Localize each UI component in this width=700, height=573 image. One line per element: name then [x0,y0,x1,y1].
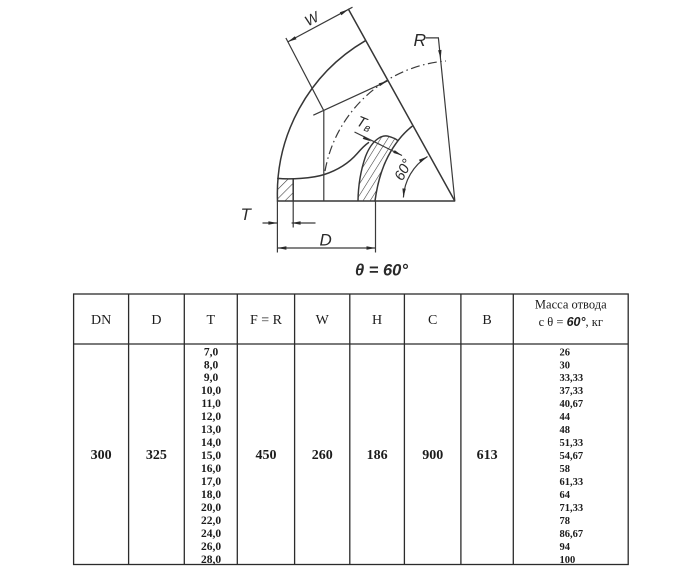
svg-text:D: D [320,231,332,250]
svg-text:86,67: 86,67 [560,529,584,540]
svg-text:20,0: 20,0 [201,502,221,514]
svg-text:θ = 60°: θ = 60° [355,262,408,280]
svg-text:14,0: 14,0 [201,437,221,449]
svg-text:24,0: 24,0 [201,528,221,540]
svg-text:W: W [316,313,330,328]
svg-text:R: R [414,30,427,50]
svg-text:DN: DN [91,313,111,328]
svg-text:450: 450 [256,448,277,463]
svg-text:54,67: 54,67 [560,451,584,462]
svg-text:11,0: 11,0 [201,398,221,410]
svg-text:33,33: 33,33 [560,373,584,384]
svg-text:300: 300 [91,448,112,463]
svg-text:16,0: 16,0 [201,463,221,475]
svg-text:13,0: 13,0 [201,424,221,436]
svg-text:12,0: 12,0 [201,411,221,423]
svg-text:28,0: 28,0 [201,554,221,566]
svg-text:100: 100 [560,555,576,566]
svg-text:64: 64 [560,490,571,501]
svg-text:9,0: 9,0 [204,372,219,384]
svg-text:71,33: 71,33 [560,503,584,514]
svg-text:D: D [151,313,161,328]
svg-text:8,0: 8,0 [204,359,219,371]
svg-text:60°: 60° [392,157,417,184]
svg-text:30: 30 [560,360,571,371]
svg-text:61,33: 61,33 [560,477,584,488]
svg-text:W: W [302,9,323,30]
svg-text:H: H [372,313,382,328]
svg-text:325: 325 [146,448,167,463]
svg-text:22,0: 22,0 [201,515,221,527]
svg-text:37,33: 37,33 [560,386,584,397]
svg-text:17,0: 17,0 [201,476,221,488]
svg-text:58: 58 [560,464,571,475]
svg-text:C: C [428,313,437,328]
svg-text:T: T [207,313,216,328]
svg-text:26,0: 26,0 [201,541,221,553]
svg-text:26: 26 [560,347,571,358]
svg-text:Tв: Tв [354,113,375,135]
svg-text:260: 260 [312,448,333,463]
svg-text:F = R: F = R [250,313,283,328]
svg-text:B: B [482,313,491,328]
svg-text:900: 900 [422,448,443,463]
svg-text:40,67: 40,67 [560,399,584,410]
svg-text:48: 48 [560,425,571,436]
svg-text:7,0: 7,0 [204,346,219,358]
svg-text:15,0: 15,0 [201,450,221,462]
svg-text:51,33: 51,33 [560,438,584,449]
svg-text:94: 94 [560,542,571,553]
svg-text:44: 44 [560,412,571,423]
svg-text:T: T [241,205,253,224]
svg-text:186: 186 [367,448,388,463]
svg-text:613: 613 [477,448,498,463]
svg-text:18,0: 18,0 [201,489,221,501]
svg-text:78: 78 [560,516,571,527]
svg-text:10,0: 10,0 [201,385,221,397]
svg-text:с θ = 60°, кг: с θ = 60°, кг [539,315,603,329]
svg-text:Масса отвода: Масса отвода [535,298,607,312]
